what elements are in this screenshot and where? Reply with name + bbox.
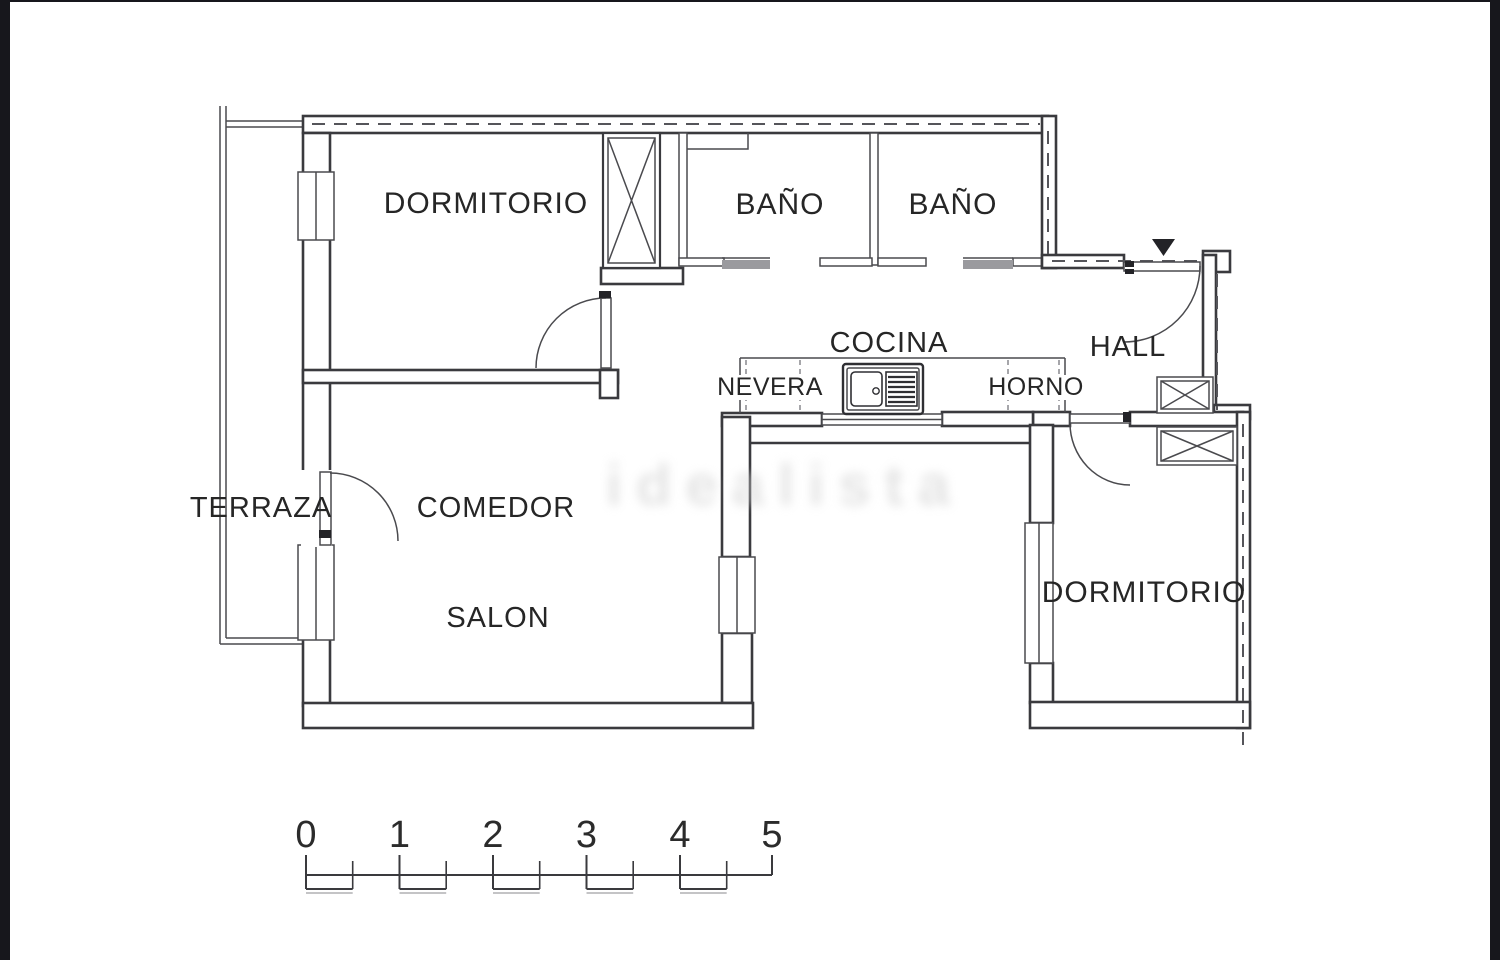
bath1-sliding-door-icon [722, 258, 770, 269]
terraza-boundary [220, 106, 305, 644]
windows [298, 172, 1053, 663]
salon-window-icon [298, 545, 334, 640]
room-label-bano-left: BAÑO [735, 187, 824, 221]
room-label-comedor: COMEDOR [417, 492, 575, 524]
sink-icon [843, 364, 923, 414]
scale-label-1: 1 [389, 814, 410, 856]
bedroom1-wardrobe-icon [603, 133, 660, 268]
kitchen-counter: NEVERA HORNO [717, 358, 1084, 414]
room-label-dormitorio-top: DORMITORIO [384, 187, 588, 220]
room-label-hall: HALL [1090, 331, 1167, 363]
bedroom2-door-icon [1070, 412, 1131, 485]
entrance-arrow-icon [1152, 239, 1175, 256]
floor-plan-page: NEVERA HORNO DORMITORIO BAÑO BAÑO COCINA… [0, 0, 1500, 960]
floor-plan: NEVERA HORNO DORMITORIO BAÑO BAÑO COCINA… [0, 0, 1500, 960]
appliance-label-horno: HORNO [988, 373, 1084, 401]
scale-label-2: 2 [482, 814, 503, 856]
hall-shaft-icon [1157, 377, 1213, 413]
bedroom1-window-icon [298, 172, 334, 240]
room-label-cocina: COCINA [830, 327, 949, 359]
room-label-bano-right: BAÑO [908, 187, 997, 221]
bath2-sliding-door-icon [963, 258, 1013, 269]
kitchen-patio-window-icon [822, 414, 942, 425]
scale-label-3: 3 [576, 814, 597, 856]
room-label-dormitorio-bottom: DORMITORIO [1042, 576, 1246, 609]
salon-patio-window-icon [719, 557, 755, 633]
room-label-terraza: TERRAZA [190, 492, 332, 524]
bedroom2-wardrobe-icon [1157, 427, 1237, 465]
scale-label-4: 4 [669, 814, 690, 856]
scale-label-5: 5 [761, 814, 782, 856]
watermark: idealista [606, 453, 964, 518]
bedroom1-door-icon [536, 291, 611, 368]
scale-label-0: 0 [295, 814, 316, 856]
scale-bar: 0 1 2 3 4 5 [295, 814, 782, 893]
entrance-door-icon [1124, 261, 1200, 342]
room-label-salon: SALON [446, 602, 549, 634]
appliance-label-nevera: NEVERA [717, 373, 823, 401]
